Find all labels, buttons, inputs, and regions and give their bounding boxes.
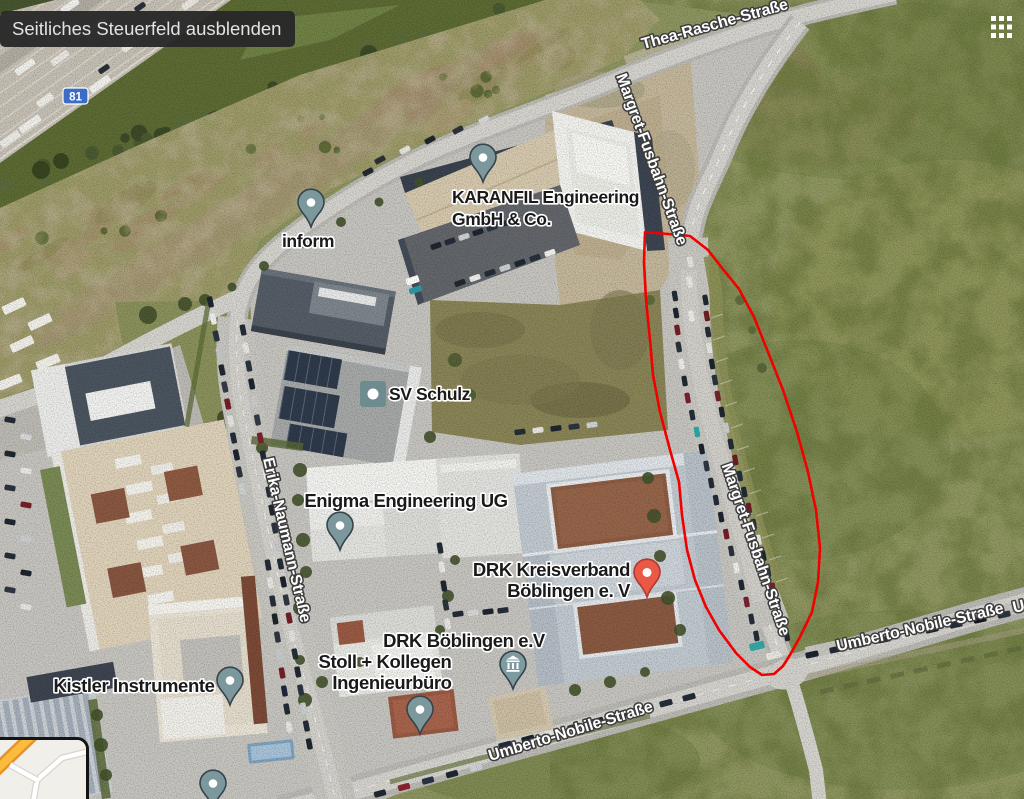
svg-text:SV Schulz: SV Schulz [389,384,471,404]
svg-text:Böblingen e. V: Böblingen e. V [507,580,631,601]
svg-text:Kistler Instrumente: Kistler Instrumente [54,675,215,696]
svg-text:KARANFIL Engineering: KARANFIL Engineering [452,187,639,207]
svg-text:Enigma Engineering UG: Enigma Engineering UG [304,490,507,511]
svg-text:81: 81 [69,92,82,104]
svg-text:DRK Böblingen e.V: DRK Böblingen e.V [383,630,546,651]
svg-text:GmbH & Co.: GmbH & Co. [452,209,551,229]
svg-text:Ingenieurbüro: Ingenieurbüro [332,672,451,693]
svg-text:Stoll + Kollegen: Stoll + Kollegen [319,651,452,672]
svg-text:DRK Kreisverband: DRK Kreisverband [473,559,630,580]
svg-text:inform: inform [282,231,334,251]
